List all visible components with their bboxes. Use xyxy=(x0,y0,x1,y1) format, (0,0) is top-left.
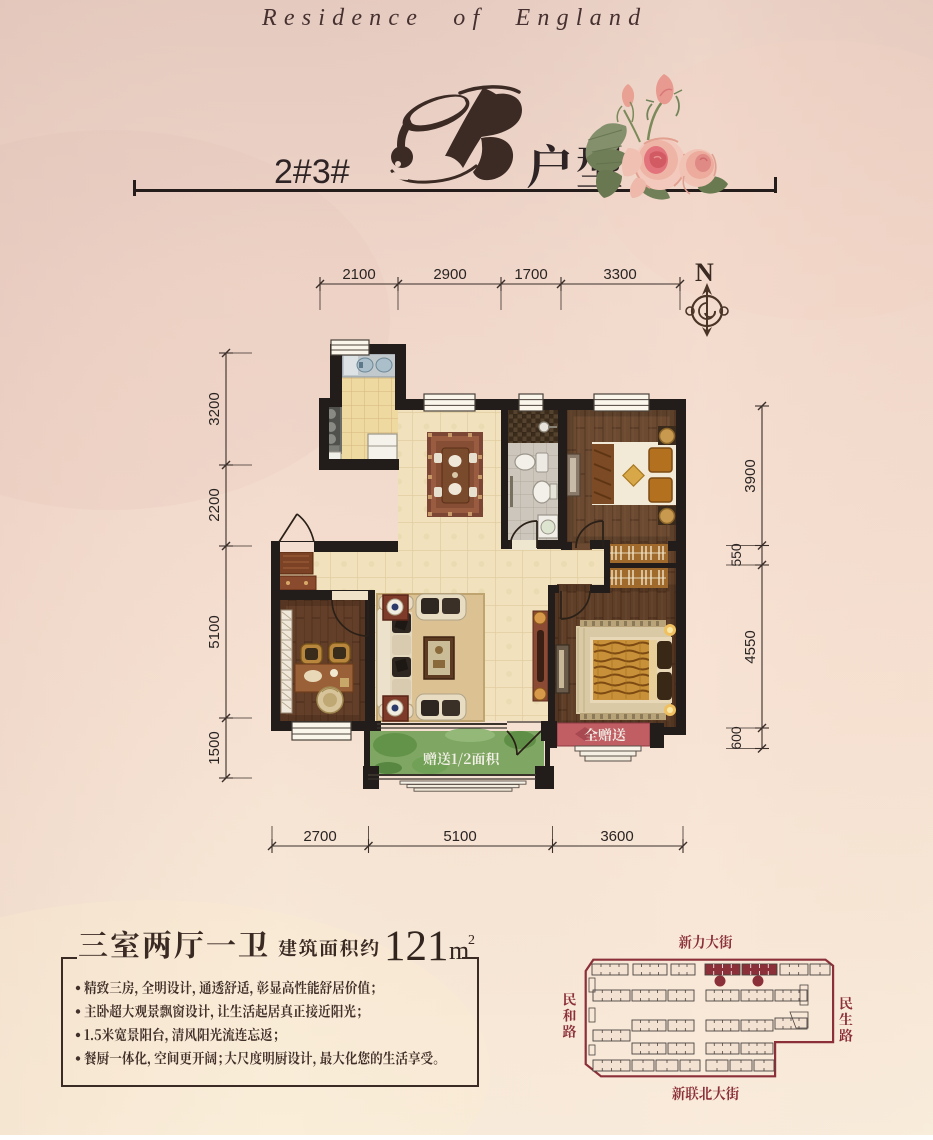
svg-text:N: N xyxy=(695,258,714,287)
svg-text:Residence of England: Residence of England xyxy=(261,5,647,31)
svg-text:2200: 2200 xyxy=(206,488,223,521)
svg-text:2: 2 xyxy=(468,933,475,948)
svg-text:3300: 3300 xyxy=(603,266,636,283)
svg-text:5100: 5100 xyxy=(443,828,476,845)
svg-text:3600: 3600 xyxy=(600,828,633,845)
svg-text:550: 550 xyxy=(728,543,744,567)
svg-text:2900: 2900 xyxy=(433,266,466,283)
svg-text:5100: 5100 xyxy=(206,615,223,648)
svg-text:600: 600 xyxy=(728,726,744,750)
svg-text:2700: 2700 xyxy=(303,828,336,845)
svg-text:3200: 3200 xyxy=(206,392,223,425)
svg-text:121: 121 xyxy=(384,923,449,970)
svg-text:2#3#: 2#3# xyxy=(274,153,350,191)
svg-text:m: m xyxy=(449,936,469,965)
svg-text:3900: 3900 xyxy=(742,459,759,492)
svg-text:2100: 2100 xyxy=(342,266,375,283)
svg-text:1700: 1700 xyxy=(514,266,547,283)
svg-text:1500: 1500 xyxy=(206,731,223,764)
svg-text:4550: 4550 xyxy=(742,630,759,663)
